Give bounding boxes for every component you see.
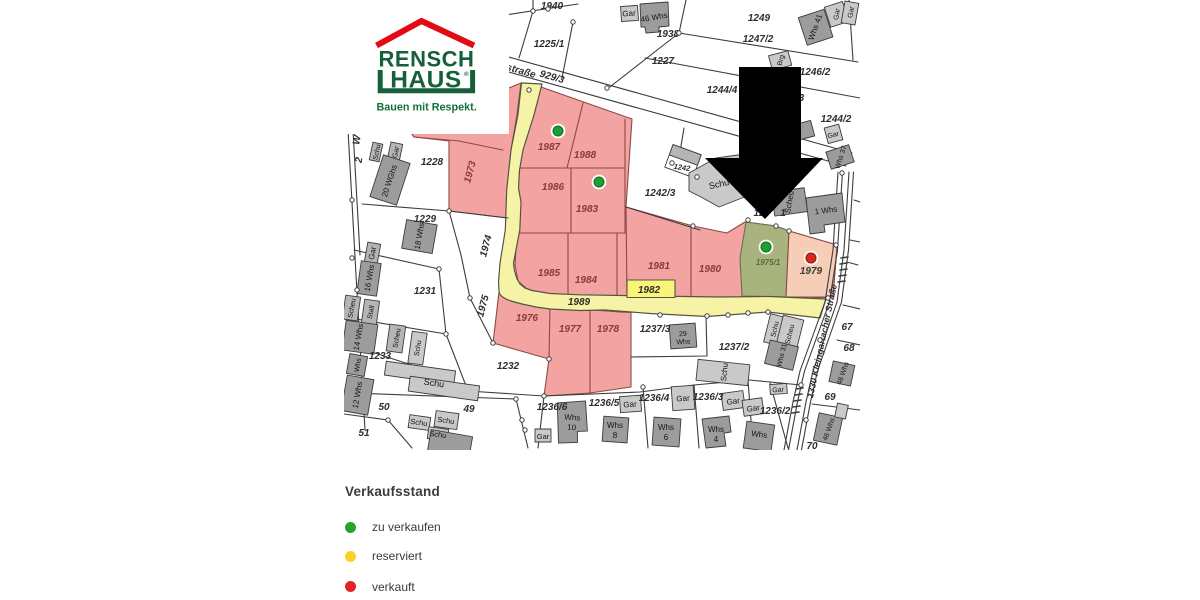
- svg-text:1984: 1984: [575, 275, 598, 286]
- svg-text:29: 29: [679, 331, 687, 339]
- svg-text:1246/2: 1246/2: [800, 67, 831, 78]
- svg-text:1236/2: 1236/2: [760, 406, 791, 417]
- svg-text:1979: 1979: [800, 266, 823, 277]
- svg-text:1242/3: 1242/3: [645, 188, 676, 199]
- svg-text:Gar: Gar: [746, 403, 761, 414]
- svg-text:Whs: Whs: [708, 425, 724, 434]
- svg-text:Bauen mit Respekt.: Bauen mit Respekt.: [377, 102, 477, 114]
- svg-text:6: 6: [664, 433, 669, 442]
- svg-text:Gar: Gar: [537, 432, 550, 441]
- svg-text:1989: 1989: [568, 297, 591, 308]
- svg-text:1225/1: 1225/1: [534, 39, 565, 50]
- svg-text:1987: 1987: [538, 142, 561, 153]
- svg-text:1940: 1940: [541, 1, 564, 12]
- svg-text:1232: 1232: [497, 361, 520, 372]
- svg-text:1975/1: 1975/1: [756, 258, 781, 267]
- svg-text:straße: straße: [505, 62, 537, 81]
- svg-text:70: 70: [806, 441, 818, 450]
- svg-text:1236/5: 1236/5: [589, 398, 620, 409]
- svg-text:1236/3: 1236/3: [693, 392, 724, 403]
- svg-text:1249: 1249: [748, 13, 771, 24]
- svg-text:1231: 1231: [414, 286, 437, 297]
- svg-text:1244/4: 1244/4: [707, 85, 738, 96]
- svg-text:Whs: Whs: [607, 421, 623, 430]
- svg-text:HAUS: HAUS: [390, 67, 461, 94]
- svg-text:51: 51: [358, 428, 370, 439]
- svg-text:4: 4: [714, 435, 719, 444]
- svg-text:Gar: Gar: [622, 9, 636, 19]
- svg-text:1236/6: 1236/6: [537, 402, 568, 413]
- svg-text:49: 49: [462, 404, 475, 415]
- svg-text:1988: 1988: [574, 150, 597, 161]
- svg-text:1985: 1985: [538, 268, 561, 279]
- svg-text:1227: 1227: [652, 56, 675, 67]
- svg-text:1977: 1977: [559, 324, 582, 335]
- svg-text:Gar: Gar: [726, 396, 741, 407]
- svg-text:1237/3: 1237/3: [640, 324, 671, 335]
- svg-text:1244/2: 1244/2: [821, 114, 852, 125]
- svg-text:Schu: Schu: [719, 363, 730, 382]
- svg-text:69: 69: [824, 392, 836, 403]
- svg-text:1976: 1976: [516, 313, 539, 324]
- svg-text:1980: 1980: [699, 264, 722, 275]
- svg-text:1986: 1986: [542, 182, 565, 193]
- svg-text:1982: 1982: [638, 285, 661, 296]
- svg-text:1233: 1233: [369, 351, 392, 362]
- svg-text:Gar: Gar: [772, 387, 785, 395]
- svg-text:1228: 1228: [421, 157, 444, 168]
- svg-text:1247/2: 1247/2: [743, 34, 774, 45]
- svg-text:1938: 1938: [657, 29, 680, 40]
- svg-text:10: 10: [567, 423, 577, 433]
- svg-text:1983: 1983: [576, 204, 599, 215]
- svg-text:1981: 1981: [648, 261, 671, 272]
- svg-text:®: ®: [464, 70, 469, 78]
- svg-text:68: 68: [843, 343, 855, 354]
- svg-text:Whs: Whs: [564, 412, 581, 422]
- svg-text:1974: 1974: [478, 234, 494, 259]
- svg-text:Gar: Gar: [623, 400, 637, 410]
- svg-text:Gar: Gar: [676, 394, 690, 404]
- svg-text:67: 67: [841, 322, 853, 333]
- svg-text:Whs: Whs: [658, 423, 674, 432]
- svg-text:W: W: [351, 133, 364, 146]
- svg-text:Whs: Whs: [676, 338, 691, 346]
- svg-text:1236/4: 1236/4: [639, 393, 670, 404]
- svg-text:1975: 1975: [475, 294, 491, 319]
- svg-text:8: 8: [613, 431, 618, 440]
- svg-text:1978: 1978: [597, 324, 620, 335]
- svg-text:1237/2: 1237/2: [719, 342, 750, 353]
- svg-text:50: 50: [378, 402, 390, 413]
